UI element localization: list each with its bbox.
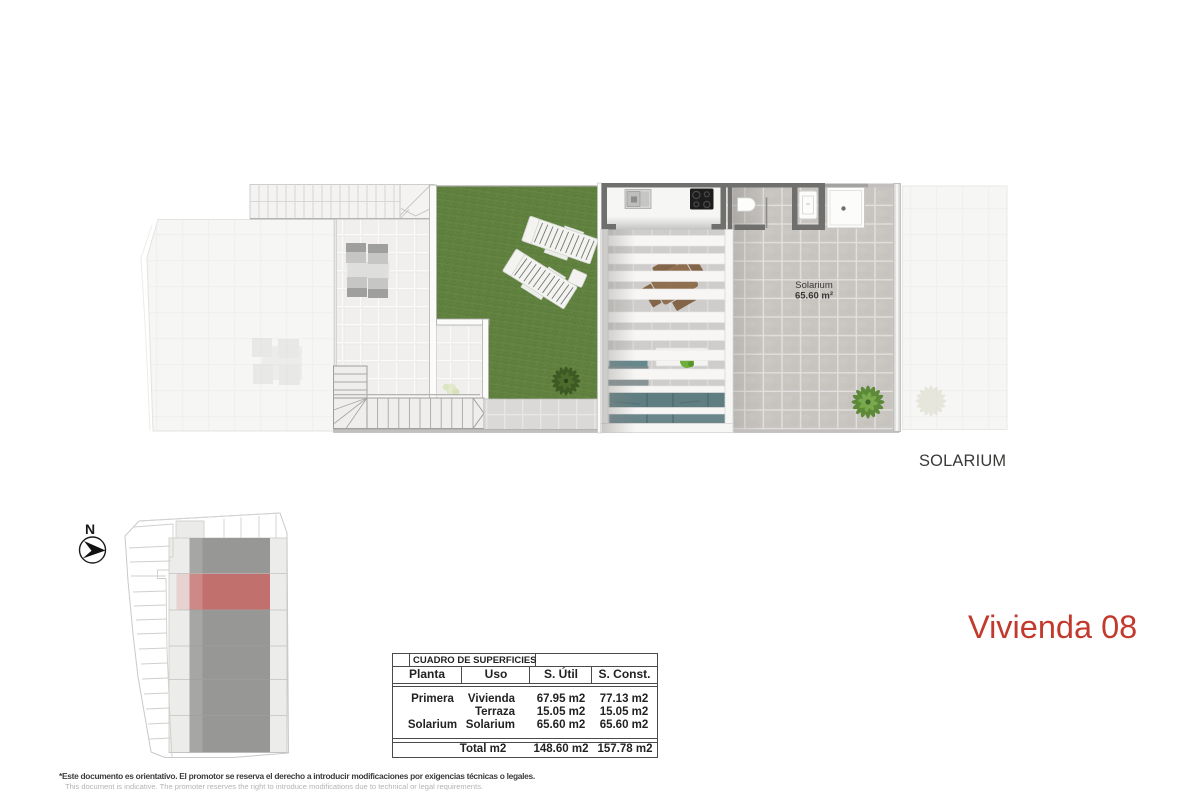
svg-text:Solarium: Solarium — [795, 280, 833, 291]
svg-text:65.60 m²: 65.60 m² — [795, 291, 833, 302]
svg-text:N: N — [85, 521, 95, 537]
svg-text:SOLARIUM: SOLARIUM — [919, 452, 1006, 470]
